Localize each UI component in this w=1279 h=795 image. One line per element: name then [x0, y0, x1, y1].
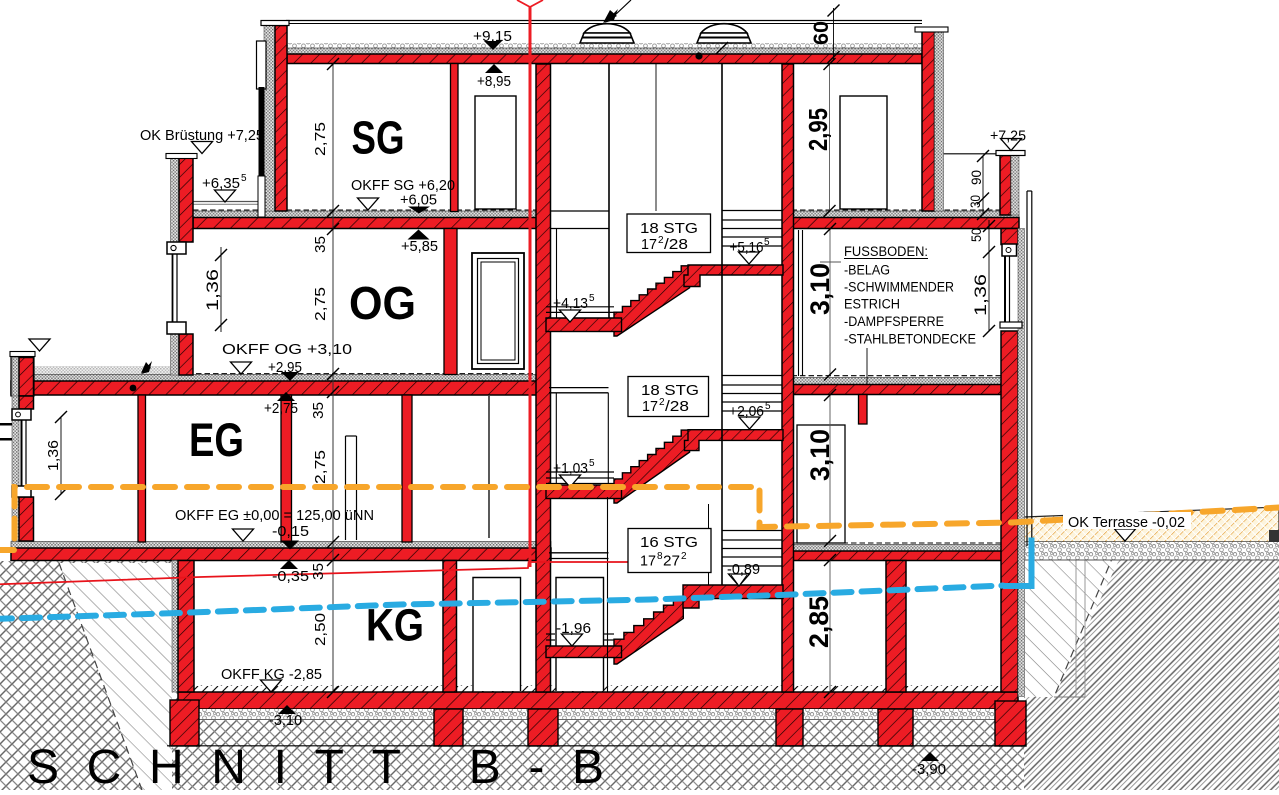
svg-text:-3,10: -3,10 [269, 712, 302, 729]
svg-text:2,85: 2,85 [804, 596, 834, 648]
svg-text:5: 5 [764, 237, 770, 248]
svg-text:1,36: 1,36 [203, 269, 222, 311]
svg-text:5: 5 [765, 401, 771, 412]
svg-text:5: 5 [241, 173, 247, 184]
svg-text:17: 17 [641, 236, 657, 253]
svg-text:1,36: 1,36 [971, 274, 990, 316]
svg-text:+1,03: +1,03 [553, 460, 588, 477]
svg-text:OK Terrasse -0,02: OK Terrasse -0,02 [1068, 514, 1185, 531]
svg-text:+7,25: +7,25 [990, 128, 1026, 145]
svg-text:-0,35: -0,35 [272, 568, 309, 585]
svg-text:FUSSBODEN:: FUSSBODEN: [844, 244, 928, 259]
svg-text:OG: OG [349, 277, 416, 329]
svg-text:2,75: 2,75 [312, 287, 329, 321]
svg-text:+6,35: +6,35 [202, 175, 240, 192]
svg-text:27: 27 [663, 553, 680, 570]
svg-text:2,75: 2,75 [312, 450, 329, 484]
svg-text:5: 5 [589, 293, 595, 304]
svg-text:/28: /28 [664, 236, 688, 253]
svg-text:16 STG: 16 STG [640, 534, 698, 551]
svg-text:3,10: 3,10 [805, 429, 835, 481]
svg-text:1,36: 1,36 [45, 440, 62, 471]
svg-text:+6,05: +6,05 [400, 192, 437, 209]
svg-text:OKFF KG -2,85: OKFF KG -2,85 [221, 666, 322, 683]
svg-text:18 STG: 18 STG [641, 382, 699, 399]
svg-text:2,50: 2,50 [312, 613, 329, 646]
svg-text:+9,15: +9,15 [473, 28, 512, 45]
svg-text:35: 35 [310, 563, 327, 580]
svg-text:+4,13: +4,13 [553, 295, 588, 312]
svg-text:-SCHWIMMENDER: -SCHWIMMENDER [844, 280, 954, 295]
svg-text:35: 35 [310, 402, 327, 419]
svg-text:2,75: 2,75 [312, 122, 329, 156]
svg-text:60: 60 [810, 21, 833, 45]
svg-text:3,10: 3,10 [805, 263, 835, 315]
svg-text:+2,95: +2,95 [268, 359, 302, 376]
svg-text:30: 30 [967, 195, 983, 208]
svg-text:90: 90 [968, 170, 984, 185]
svg-text:/28: /28 [665, 398, 689, 415]
svg-text:2,95: 2,95 [803, 108, 833, 151]
svg-text:35: 35 [312, 236, 329, 253]
svg-text:EG: EG [189, 413, 244, 466]
svg-text:+2,75: +2,75 [264, 400, 298, 417]
svg-text:+2,06: +2,06 [729, 403, 764, 420]
svg-text:OKFF OG +3,10: OKFF OG +3,10 [222, 341, 352, 358]
svg-text:50: 50 [968, 228, 984, 242]
svg-text:-0,15: -0,15 [272, 523, 309, 540]
svg-text:-1,96: -1,96 [556, 620, 591, 637]
svg-text:-BELAG: -BELAG [844, 263, 890, 278]
svg-text:-STAHLBETONDECKE: -STAHLBETONDECKE [844, 332, 976, 347]
svg-text:+8,95: +8,95 [477, 73, 511, 90]
svg-text:OK Brüstung +7,25: OK Brüstung +7,25 [140, 127, 264, 144]
svg-text:SG: SG [352, 112, 405, 164]
svg-text:+5,85: +5,85 [401, 238, 438, 255]
svg-text:2: 2 [681, 551, 687, 562]
svg-text:17: 17 [640, 553, 656, 570]
svg-text:17: 17 [642, 398, 658, 415]
svg-text:KG: KG [366, 600, 424, 651]
svg-text:18 STG: 18 STG [640, 220, 698, 237]
svg-text:-DAMPFSPERRE: -DAMPFSPERRE [844, 314, 944, 329]
svg-text:ESTRICH: ESTRICH [844, 297, 900, 312]
svg-text:-0,89: -0,89 [727, 561, 760, 578]
svg-text:+5,16: +5,16 [730, 239, 764, 256]
svg-text:5: 5 [589, 458, 595, 469]
svg-text:-3,90: -3,90 [912, 761, 946, 778]
svg-text:OKFF EG ±0,00 = 125,00 üNN: OKFF EG ±0,00 = 125,00 üNN [175, 507, 374, 524]
